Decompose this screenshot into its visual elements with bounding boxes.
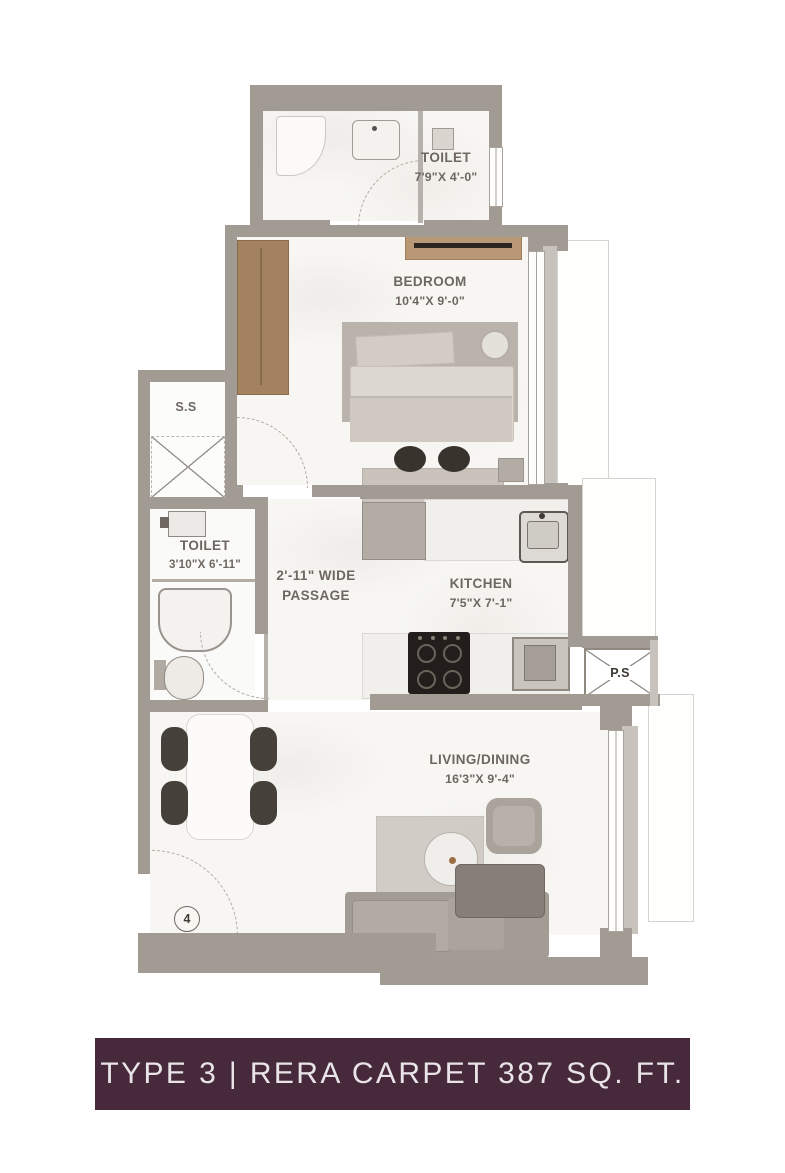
bed-blanket-symbol xyxy=(350,396,512,442)
table-decor-symbol xyxy=(449,857,456,864)
dining-chair-symbol xyxy=(161,781,188,825)
room-dims: 10'4"X 9'-0" xyxy=(330,292,530,310)
entrance-number-badge: 4 xyxy=(174,906,200,932)
tap-symbol xyxy=(539,513,545,519)
fridge-symbol xyxy=(362,502,426,560)
wall-segment xyxy=(225,225,568,237)
bed-pillows-symbol xyxy=(355,331,455,368)
dining-table-symbol xyxy=(186,714,254,840)
kitchen-label: KITCHEN 7'5"X 7'-1" xyxy=(408,574,554,613)
living-chajja-outline xyxy=(648,694,694,922)
wall-segment xyxy=(582,636,658,648)
burner-symbol xyxy=(417,644,436,663)
room-dims: 7'9"X 4'-0" xyxy=(390,168,502,186)
sink-basin xyxy=(527,521,559,549)
hob-knobs xyxy=(418,636,460,640)
wall-segment xyxy=(138,712,150,874)
wall-segment xyxy=(370,694,582,710)
room-dims: 3'10"X 6'-11" xyxy=(150,556,260,573)
passage-label: 2'-11" WIDE PASSAGE xyxy=(256,566,376,607)
wardrobe-divider xyxy=(260,248,262,385)
room-name: TOILET xyxy=(180,538,230,553)
floorplan-page: TOILET 7'9"X 4'-0" BEDROOM 10'4"X 9'-0" … xyxy=(0,0,785,1173)
wall-segment xyxy=(225,225,237,497)
dining-chair-symbol xyxy=(161,727,188,771)
wall-segment xyxy=(150,497,268,509)
burner-symbol xyxy=(417,670,436,689)
room-name: KITCHEN xyxy=(450,576,513,591)
tap-symbol xyxy=(160,517,169,528)
wall-segment xyxy=(250,85,263,233)
room-name: LIVING/DINING xyxy=(429,752,530,767)
room-dims: 7'5"X 7'-1" xyxy=(408,594,554,612)
ottoman-symbol xyxy=(394,446,426,472)
wall-segment xyxy=(600,928,632,962)
wall-segment xyxy=(600,694,632,730)
window-ledge xyxy=(622,726,638,934)
living-label: LIVING/DINING 16'3"X 9'-4" xyxy=(380,750,580,789)
ottoman-symbol xyxy=(438,446,470,472)
appliance-inner xyxy=(524,645,556,681)
room-dims: 16'3"X 9'-4" xyxy=(380,770,580,788)
wardrobe-symbol xyxy=(237,240,289,395)
tap-symbol xyxy=(372,126,377,131)
wall-segment xyxy=(250,85,502,111)
room-name: TOILET xyxy=(421,150,471,165)
wall-segment xyxy=(138,370,150,509)
kitchen-chajja-outline xyxy=(582,478,656,642)
dining-chair-symbol xyxy=(250,727,277,771)
wall-segment xyxy=(489,85,502,147)
bedroom-window xyxy=(528,251,545,485)
wall-segment xyxy=(360,485,582,499)
ss-label: S.S xyxy=(146,398,226,417)
ss-shaft-cross xyxy=(151,436,225,498)
passage-line1: 2'-11" WIDE xyxy=(276,568,355,583)
geyser-symbol xyxy=(168,511,206,537)
bedroom-chajja-outline xyxy=(557,240,609,492)
dining-chair-symbol xyxy=(250,781,277,825)
bedside-lamp-symbol xyxy=(480,330,510,360)
wall-segment xyxy=(138,497,150,712)
shower-partition xyxy=(152,579,255,582)
toilet-left-label: TOILET 3'10"X 6'-11" xyxy=(150,536,260,574)
living-window xyxy=(608,730,624,932)
wc-bowl-symbol xyxy=(164,656,204,700)
passage-line2: PASSAGE xyxy=(282,588,350,603)
wall-segment xyxy=(138,700,268,712)
bedside-table-symbol xyxy=(498,458,524,482)
title-banner: TYPE 3 | RERA CARPET 387 SQ. FT. xyxy=(95,1038,690,1110)
door-leaf xyxy=(264,634,268,700)
burner-symbol xyxy=(443,644,462,663)
wall-segment xyxy=(225,485,243,497)
room-name: BEDROOM xyxy=(393,274,466,289)
ps-label: P.S xyxy=(607,666,632,680)
wall-segment xyxy=(138,370,228,382)
entrance-number: 4 xyxy=(184,912,191,926)
ps-shaft-cross: P.S xyxy=(584,648,656,698)
armchair-seat xyxy=(493,806,535,846)
bedroom-label: BEDROOM 10'4"X 9'-0" xyxy=(330,272,530,311)
burner-symbol xyxy=(443,670,462,689)
wall-segment xyxy=(568,499,582,647)
window-ledge xyxy=(543,246,557,488)
room-name: S.S xyxy=(175,400,196,414)
sofa-chaise-symbol xyxy=(455,864,545,918)
wall-segment xyxy=(650,640,658,706)
tv-symbol xyxy=(414,243,512,248)
toilet-top-label: TOILET 7'9"X 4'-0" xyxy=(390,148,502,187)
hob-symbol xyxy=(408,632,470,694)
shower-drain-symbol xyxy=(432,128,454,150)
banner-text: TYPE 3 | RERA CARPET 387 SQ. FT. xyxy=(100,1057,684,1091)
